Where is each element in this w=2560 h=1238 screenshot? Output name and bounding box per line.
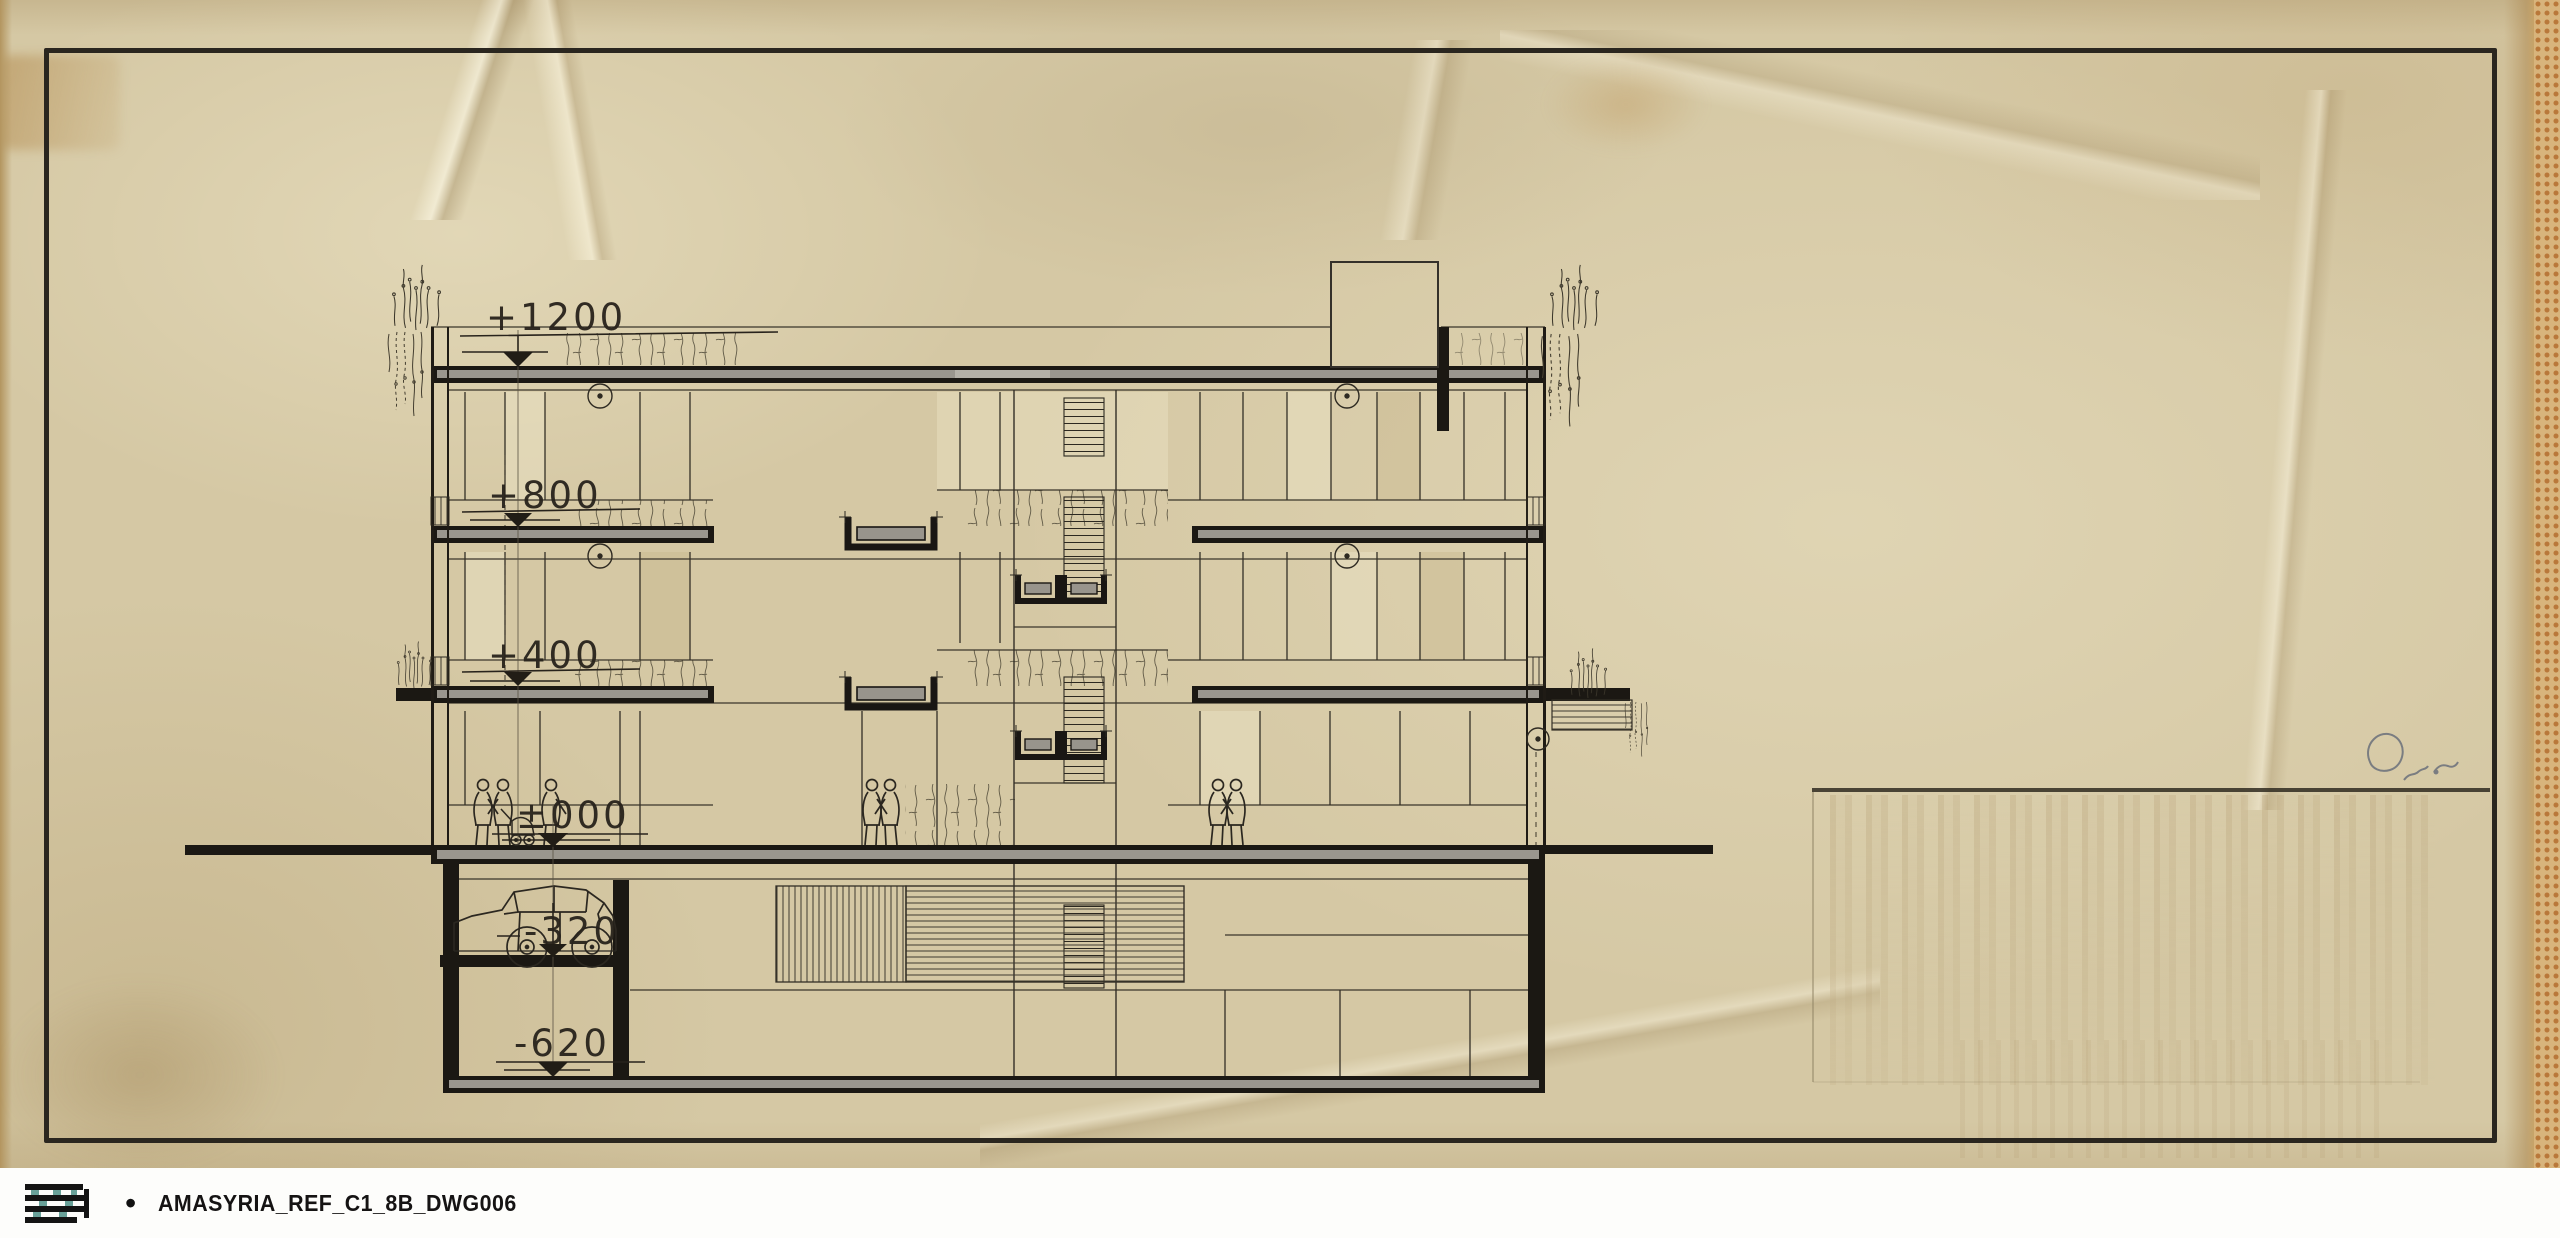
building-section xyxy=(185,262,1713,1093)
roof-bulkhead xyxy=(1331,262,1438,367)
level-annotation-ground: ±000 xyxy=(516,794,630,837)
amasyria-logo-mark xyxy=(25,1183,89,1223)
level-annotation-garage-lower: -620 xyxy=(514,1022,610,1065)
footer-label: AMASYRIA_REF_C1_8B_DWG006 xyxy=(158,1190,517,1217)
facade-panels xyxy=(465,392,1464,805)
paper-sheet: +1200 +800 +400 ±000 xyxy=(0,0,2560,1168)
garage-details xyxy=(776,886,1184,982)
level-annotation-garage-upper: -320 xyxy=(524,910,620,953)
slab-stubs xyxy=(848,517,934,707)
signature-mark xyxy=(2368,734,2458,780)
section-drawing: +1200 +800 +400 ±000 xyxy=(0,0,2560,1168)
scanned-drawing-sheet: +1200 +800 +400 ±000 xyxy=(0,0,2560,1238)
footer-bullet: • xyxy=(125,1168,136,1238)
logo-hook xyxy=(84,1189,89,1218)
planter-box xyxy=(1552,700,1632,730)
footer-strip: • AMASYRIA_REF_C1_8B_DWG006 xyxy=(0,1168,2560,1238)
backing-texture xyxy=(2534,0,2560,1168)
logo-bar xyxy=(25,1195,89,1201)
logo-bar xyxy=(25,1217,77,1223)
faint-annex-outline xyxy=(1812,790,2490,1082)
level-annotation-roof: +1200 xyxy=(486,296,626,339)
